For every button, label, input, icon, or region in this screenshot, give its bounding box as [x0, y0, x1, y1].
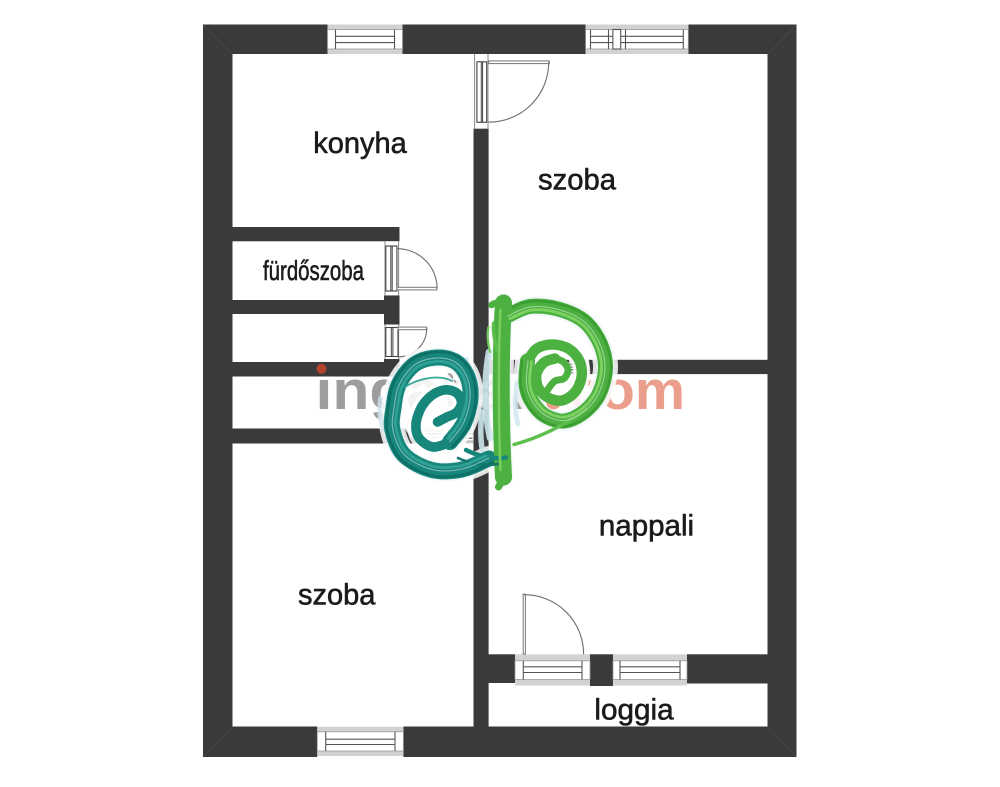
svg-text:szoba: szoba [538, 164, 616, 197]
svg-text:fürdőszoba: fürdőszoba [263, 255, 364, 286]
svg-text:loggia: loggia [594, 694, 674, 727]
svg-text:konyha: konyha [313, 127, 407, 160]
svg-text:nappali: nappali [599, 510, 694, 543]
svg-text:szoba: szoba [298, 578, 376, 611]
